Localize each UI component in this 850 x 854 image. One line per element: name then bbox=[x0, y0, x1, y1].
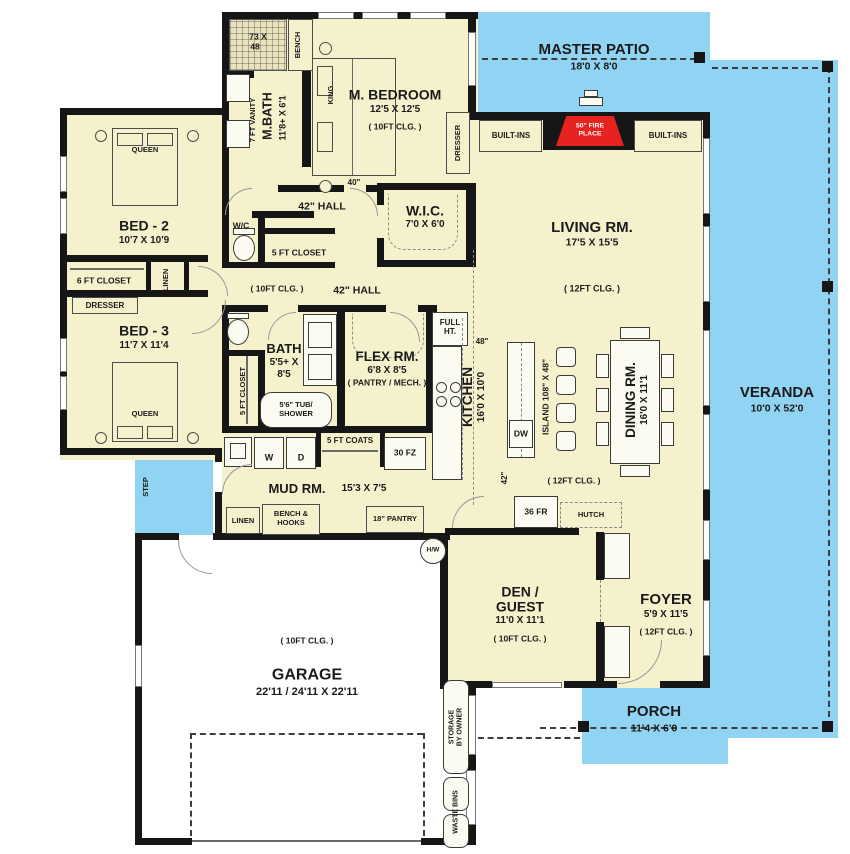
window bbox=[60, 338, 67, 372]
pillow bbox=[117, 426, 143, 439]
master-bedroom-ceiling: ( 10FT CLG. ) bbox=[369, 123, 422, 132]
nightstand bbox=[319, 180, 332, 193]
pillow bbox=[317, 122, 333, 152]
sink bbox=[308, 322, 332, 348]
nightstand bbox=[319, 42, 332, 55]
stool bbox=[556, 403, 576, 423]
garage-door-dash-top bbox=[190, 733, 423, 735]
shower-dims: 48 bbox=[250, 43, 259, 52]
dryer-label: D bbox=[298, 453, 305, 462]
window bbox=[703, 520, 710, 560]
full-ht-label: HT. bbox=[444, 328, 456, 336]
sliding-door bbox=[703, 414, 710, 490]
wall bbox=[60, 108, 229, 115]
bed3-title: BED - 3 bbox=[119, 324, 169, 339]
wall bbox=[222, 350, 264, 356]
toilet-bowl bbox=[227, 319, 249, 345]
bed2-dims: 10'7 X 10'9 bbox=[119, 236, 169, 247]
garage-ceiling: ( 10FT CLG. ) bbox=[281, 637, 334, 646]
stool bbox=[556, 347, 576, 367]
veranda-right-dashed-edge bbox=[828, 67, 830, 727]
hall-42-label: 42" HALL bbox=[298, 201, 346, 212]
stool bbox=[556, 431, 576, 451]
pillow bbox=[117, 133, 143, 146]
washer-label: W bbox=[265, 453, 274, 462]
walk-dashed-edge bbox=[478, 737, 580, 739]
king-bed-label: KING bbox=[327, 86, 335, 105]
hutch-label: HUTCH bbox=[578, 511, 604, 519]
bench-hooks-label: HOOKS bbox=[277, 519, 305, 527]
wc-label: W/C bbox=[233, 222, 250, 231]
pantry-label: 18" PANTRY bbox=[373, 515, 417, 523]
floor-plan: 50" FIRE PLACE BUILT-INS BUILT-INS bbox=[0, 0, 850, 854]
window bbox=[60, 376, 67, 410]
sliding-door bbox=[703, 138, 710, 214]
linen-label: LINEN bbox=[232, 517, 255, 525]
master-patio-dims: 18'0 X 8'0 bbox=[570, 61, 617, 72]
mud-dims: 15'3 X 7'5 bbox=[342, 484, 387, 495]
garage-door-dash-left bbox=[190, 733, 192, 836]
burner bbox=[436, 396, 447, 407]
sliding-door bbox=[703, 330, 710, 406]
kitchen-dims: 16'0 X 10'0 bbox=[476, 372, 487, 422]
den-title: DEN / bbox=[501, 585, 538, 600]
fridge-label: 36 FR bbox=[524, 508, 547, 517]
window bbox=[703, 600, 710, 656]
bath2-dims: 8'5 bbox=[277, 370, 291, 381]
patio-post bbox=[694, 52, 705, 63]
chair bbox=[596, 388, 609, 412]
kitchen-counter bbox=[432, 346, 462, 480]
master-bath-title: M.BATH bbox=[261, 92, 274, 140]
master-bedroom-dims: 12'5 X 12'5 bbox=[370, 105, 420, 116]
nightstand bbox=[95, 432, 107, 444]
dresser-label: DRESSER bbox=[86, 302, 125, 310]
storage-label: BY OWNER bbox=[456, 708, 464, 746]
closet-6ft-label: 6 FT CLOSET bbox=[77, 277, 131, 286]
storage-label: STORAGE bbox=[448, 710, 456, 745]
bed3-dims: 11'7 X 11'4 bbox=[119, 341, 168, 352]
nightstand bbox=[187, 432, 199, 444]
wall bbox=[596, 532, 604, 580]
coats-label: 5 FT COATS bbox=[327, 437, 373, 445]
fireplace-vent bbox=[579, 97, 603, 106]
wall bbox=[564, 681, 617, 688]
wall bbox=[377, 183, 473, 190]
garage-dims: 22'11 / 24'11 X 22'11 bbox=[256, 687, 358, 699]
dim-40-label: 40" bbox=[348, 179, 361, 187]
tub-label: 5'6" TUB/ bbox=[279, 401, 312, 409]
hall-42-label: 42" HALL bbox=[333, 285, 381, 296]
living-title: LIVING RM. bbox=[551, 220, 633, 236]
wall bbox=[377, 260, 473, 267]
pillow bbox=[147, 133, 173, 146]
veranda-post-mid bbox=[822, 281, 833, 292]
water-heater-label: H/W bbox=[427, 548, 440, 555]
wic-dims: 7'0 X 6'0 bbox=[405, 220, 444, 231]
foyer-ceiling: ( 12FT CLG. ) bbox=[640, 628, 693, 637]
bath2-dims: 5'5+ X bbox=[270, 358, 299, 369]
dresser-label: DRESSER bbox=[454, 125, 462, 161]
vanity-sink bbox=[226, 74, 250, 102]
closet-rod bbox=[70, 268, 144, 270]
burner bbox=[436, 382, 447, 393]
passage-dash bbox=[600, 580, 601, 622]
flex-title: FLEX RM. bbox=[356, 350, 419, 364]
wall bbox=[445, 528, 579, 535]
wall bbox=[596, 622, 604, 681]
chair bbox=[661, 388, 674, 412]
foyer-closet bbox=[604, 533, 630, 579]
step-label: STEP bbox=[142, 477, 150, 497]
chair bbox=[620, 465, 650, 477]
master-bedroom-title: M. BEDROOM bbox=[349, 88, 442, 103]
porch-title: PORCH bbox=[627, 704, 681, 720]
veranda-post-bottom bbox=[822, 721, 833, 732]
vanity-sink bbox=[226, 120, 250, 148]
dining-dims: 16'0 X 11'1 bbox=[639, 375, 650, 425]
wall bbox=[135, 838, 192, 845]
shower-dims: 73 X bbox=[249, 33, 267, 42]
tub-label: SHOWER bbox=[279, 410, 313, 418]
flex-dims: 6'8 X 8'5 bbox=[367, 366, 406, 377]
den-ceiling: ( 10FT CLG. ) bbox=[494, 635, 547, 644]
wall bbox=[222, 426, 444, 433]
bath2-title: BATH bbox=[266, 342, 301, 356]
door-arc bbox=[178, 540, 212, 574]
hall-ceiling: ( 10FT CLG. ) bbox=[251, 285, 304, 294]
veranda-top-dashed-edge bbox=[712, 67, 828, 69]
bench-hooks-label: BENCH & bbox=[274, 510, 308, 518]
garage-door-dash-right bbox=[423, 733, 425, 836]
built-ins-label: BUILT-INS bbox=[492, 132, 531, 140]
foyer-dims: 5'9 X 11'5 bbox=[644, 610, 688, 621]
wall bbox=[222, 262, 335, 268]
wall bbox=[184, 255, 189, 297]
dining-title: DINING RM. bbox=[624, 362, 639, 438]
wall bbox=[466, 183, 476, 267]
window bbox=[492, 682, 562, 688]
flex-note: ( PANTRY / MECH. ) bbox=[348, 379, 427, 388]
stool bbox=[556, 375, 576, 395]
kitchen-title: KITCHEN bbox=[461, 367, 476, 427]
porch-dims: 11'4 X 6'0 bbox=[631, 723, 677, 734]
bench-label: BENCH bbox=[294, 32, 302, 59]
queen-label: QUEEN bbox=[132, 146, 159, 154]
dining-title-group: DINING RM. 16'0 X 11'1 bbox=[624, 362, 650, 438]
den-title: GUEST bbox=[496, 600, 544, 615]
wall bbox=[60, 448, 222, 455]
window bbox=[135, 645, 142, 687]
bed-fold-line bbox=[352, 59, 353, 175]
dim-48-label: 48" bbox=[476, 338, 489, 346]
coat-rod bbox=[322, 450, 378, 452]
mud-title: MUD RM. bbox=[268, 482, 325, 496]
kitchen-title-group: KITCHEN 16'0 X 10'0 bbox=[461, 367, 487, 427]
porch-post bbox=[578, 721, 589, 732]
chair bbox=[620, 327, 650, 339]
fireplace-vent bbox=[584, 90, 598, 97]
wall bbox=[316, 433, 321, 467]
wall bbox=[215, 448, 222, 462]
window bbox=[60, 156, 67, 192]
toilet-bowl bbox=[233, 235, 255, 261]
dishwasher-label: DW bbox=[514, 430, 528, 439]
den-dims: 11'0 X 11'1 bbox=[495, 616, 544, 627]
veranda-title: VERANDA bbox=[740, 385, 814, 401]
living-dims: 17'5 X 15'5 bbox=[566, 237, 619, 248]
built-ins-label: BUILT-INS bbox=[649, 132, 688, 140]
fireplace-label: 50" FIRE bbox=[576, 122, 604, 129]
chair bbox=[661, 422, 674, 446]
wall bbox=[278, 185, 344, 192]
foyer-title: FOYER bbox=[640, 592, 692, 608]
bed2-title: BED - 2 bbox=[119, 219, 169, 234]
living-ceiling: ( 12FT CLG. ) bbox=[564, 284, 620, 293]
wall bbox=[258, 218, 265, 268]
dining-ceiling: ( 12FT CLG. ) bbox=[548, 477, 601, 486]
porch-step-area bbox=[582, 737, 728, 764]
waste-bins-label: WASTE BINS bbox=[452, 790, 459, 834]
wic-title: W.I.C. bbox=[406, 204, 444, 219]
wall bbox=[146, 255, 151, 297]
chair bbox=[661, 354, 674, 378]
nightstand bbox=[187, 130, 199, 142]
garage-door-line bbox=[192, 840, 421, 842]
dim-42-label: 42" bbox=[501, 472, 509, 485]
wall bbox=[265, 228, 335, 234]
garage-title: GARAGE bbox=[272, 668, 342, 685]
chair bbox=[596, 354, 609, 378]
wall bbox=[135, 533, 142, 845]
chair bbox=[596, 422, 609, 446]
island-label: ISLAND 108" X 48" bbox=[542, 359, 551, 435]
utility-sink-basin bbox=[230, 443, 246, 459]
storage-label-group: STORAGE BY OWNER bbox=[448, 708, 463, 746]
window bbox=[362, 12, 398, 19]
veranda-post-top bbox=[822, 61, 833, 72]
linen-label: LINEN bbox=[162, 269, 170, 292]
master-bath-dims: 11'8+ X 6'1 bbox=[278, 95, 287, 140]
wall bbox=[660, 681, 710, 688]
freezer-label: 30 FZ bbox=[394, 449, 416, 458]
closet-5ft-label: 5 FT CLOSET bbox=[272, 249, 326, 258]
fireplace-label: PLACE bbox=[578, 130, 601, 137]
pillow bbox=[147, 426, 173, 439]
wall bbox=[337, 305, 345, 433]
window bbox=[318, 12, 354, 19]
wall bbox=[377, 183, 384, 205]
veranda-dims: 10'0 X 52'0 bbox=[751, 403, 804, 414]
queen-label: QUEEN bbox=[132, 410, 159, 418]
window bbox=[60, 198, 67, 234]
sink bbox=[308, 354, 332, 380]
wall bbox=[213, 533, 450, 540]
vanity-label: 7 FT VANITY bbox=[249, 98, 257, 142]
wall bbox=[377, 238, 384, 267]
patio-door bbox=[468, 32, 476, 86]
master-patio-title: MASTER PATIO bbox=[538, 42, 649, 58]
nightstand bbox=[95, 130, 107, 142]
window bbox=[410, 12, 446, 19]
closet-5ft-label: 5 FT CLOSET bbox=[239, 367, 247, 415]
sliding-door bbox=[703, 226, 710, 302]
